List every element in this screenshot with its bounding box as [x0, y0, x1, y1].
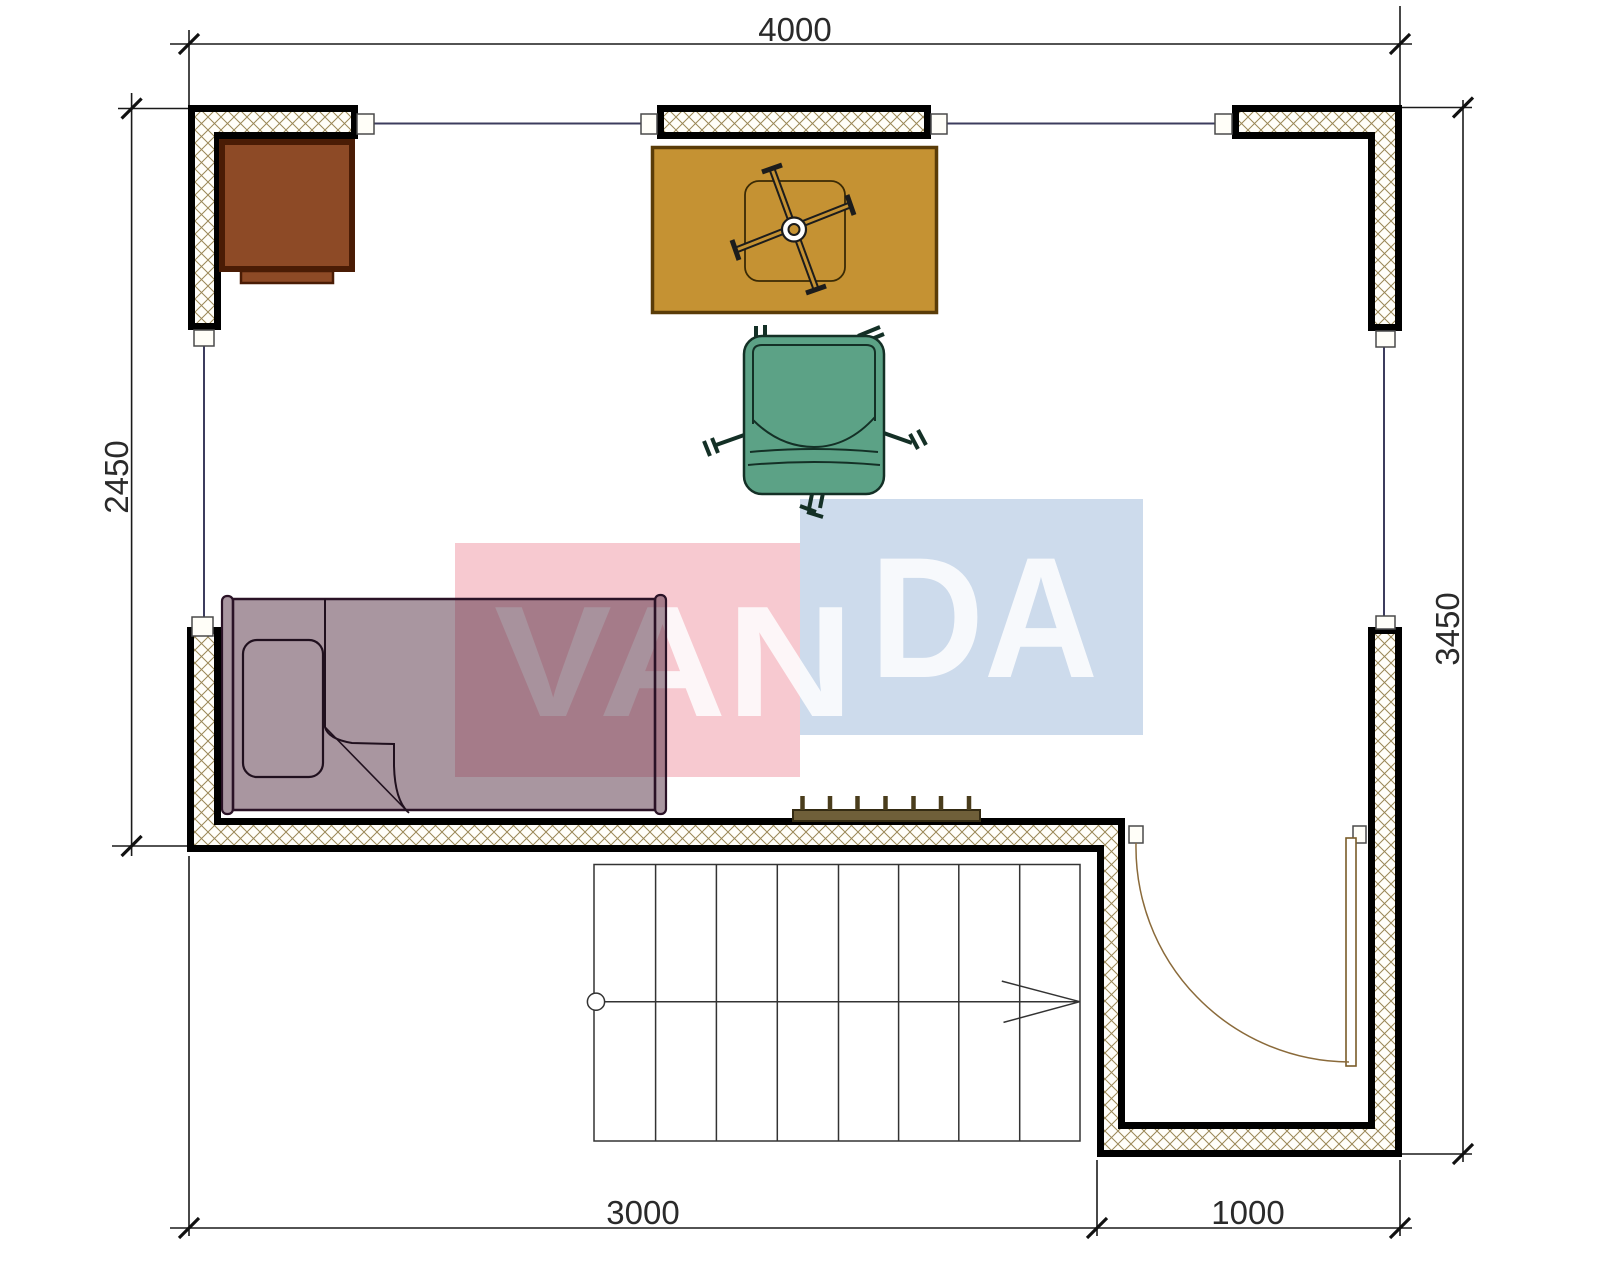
svg-text:2450: 2450 [98, 440, 135, 513]
svg-text:1000: 1000 [1211, 1194, 1284, 1231]
svg-text:4000: 4000 [758, 11, 831, 48]
svg-text:3000: 3000 [606, 1194, 679, 1231]
svg-text:3450: 3450 [1429, 592, 1466, 665]
svg-text:DA: DA [870, 522, 1098, 714]
